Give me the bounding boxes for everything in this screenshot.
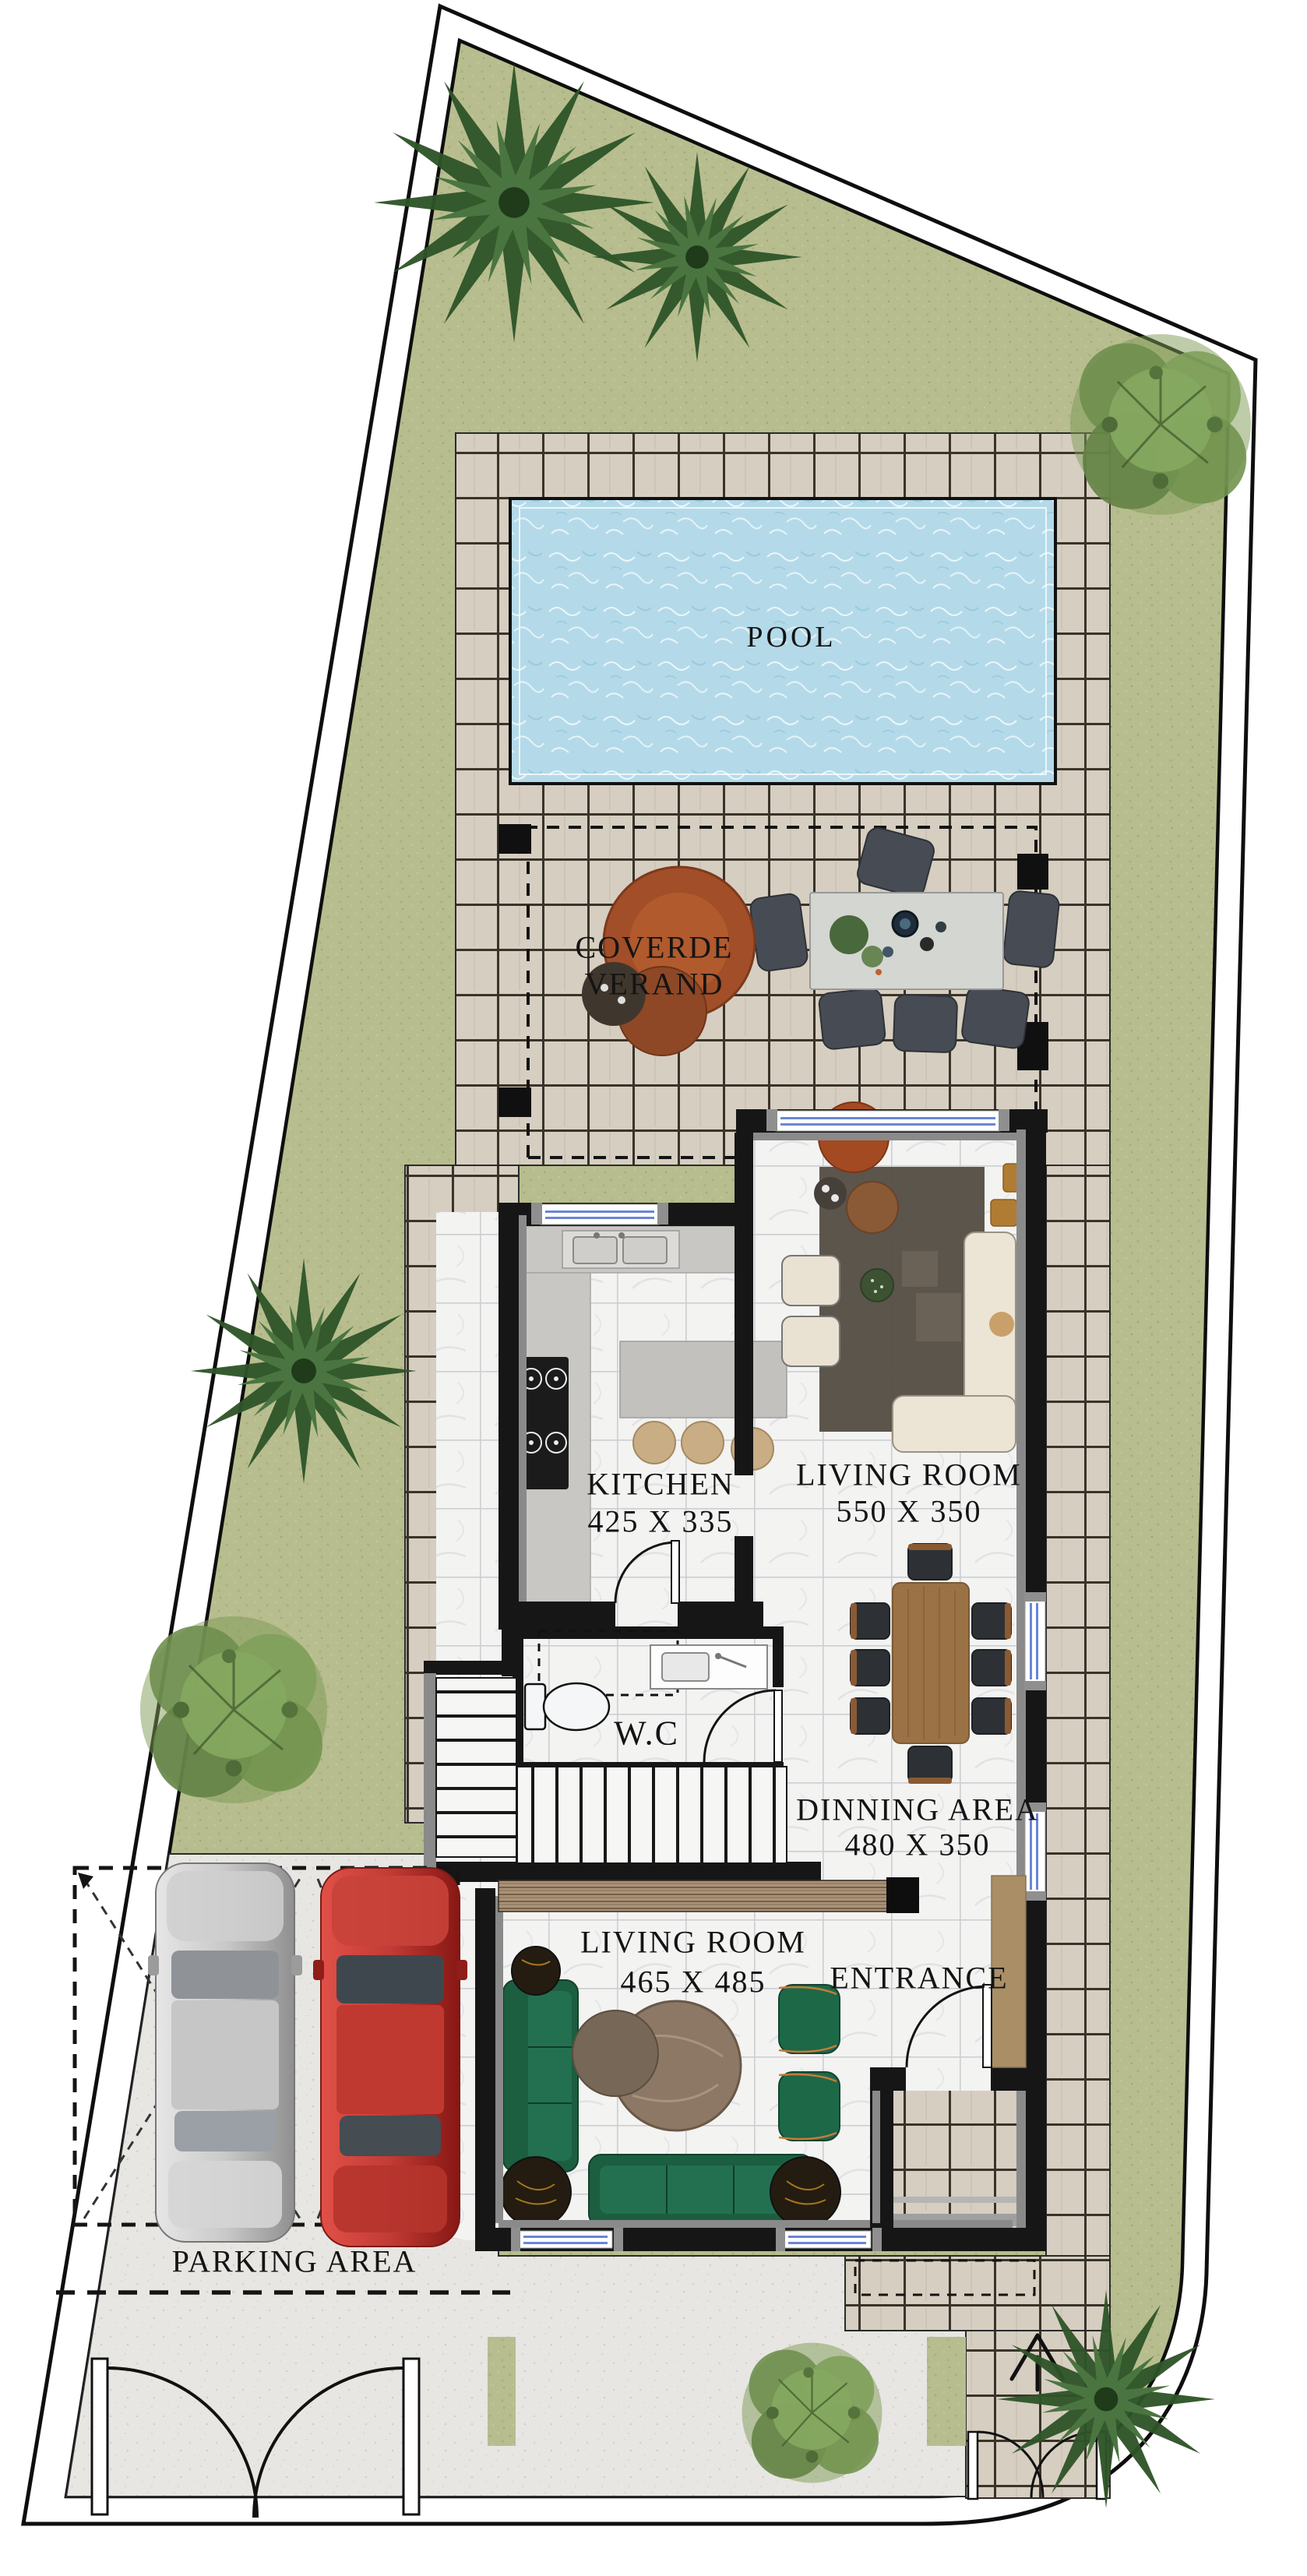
living-lower-label: LIVING ROOM xyxy=(580,1924,806,1961)
living-upper-label: LIVING ROOM xyxy=(796,1457,1022,1493)
red-car xyxy=(313,1868,467,2247)
window-bottom-1 xyxy=(511,2228,623,2251)
dining-table xyxy=(893,1583,969,1743)
media-console xyxy=(498,1877,919,1913)
veranda-label-line2: VERAND xyxy=(585,966,724,1003)
entrance-apron xyxy=(845,2256,1110,2331)
wc-label: W.C xyxy=(614,1714,679,1753)
entrance-label: ENTRANCE xyxy=(830,1960,1008,1996)
floor-plan-canvas: POOL COVERDE VERAND KITCHEN 425 X 335 LI… xyxy=(0,0,1307,2576)
window-living-top xyxy=(766,1109,1009,1131)
kitchen-island xyxy=(620,1341,787,1418)
window-right-1 xyxy=(1024,1592,1046,1690)
dining-label: DINNING AREA xyxy=(796,1792,1039,1828)
leafy-tree-icon xyxy=(742,2343,882,2483)
coffee-table-small xyxy=(572,2010,658,2096)
gray-car xyxy=(148,1863,302,2242)
pool-label: POOL xyxy=(746,620,836,654)
window-kitchen-top xyxy=(531,1203,668,1225)
living-lower-dimensions: 465 X 485 xyxy=(621,1964,766,2000)
toilet xyxy=(525,1684,545,1729)
window-bottom-2 xyxy=(776,2228,882,2251)
dining-dimensions: 480 X 350 xyxy=(845,1827,991,1863)
floor-plan-drawing xyxy=(0,0,1307,2576)
leafy-tree-icon xyxy=(140,1616,327,1803)
veranda-label-line1: COVERDE xyxy=(576,929,734,966)
parking-label: PARKING AREA xyxy=(172,2243,417,2280)
kitchen-label: KITCHEN xyxy=(587,1466,735,1503)
grass-strip-right xyxy=(927,2337,966,2446)
leafy-tree-icon xyxy=(1070,334,1251,515)
right-path xyxy=(1046,1165,1110,2256)
kitchen-dimensions: 425 X 335 xyxy=(588,1503,734,1540)
living-upper-dimensions: 550 X 350 xyxy=(837,1493,982,1530)
grass-strip-left xyxy=(488,2337,516,2446)
